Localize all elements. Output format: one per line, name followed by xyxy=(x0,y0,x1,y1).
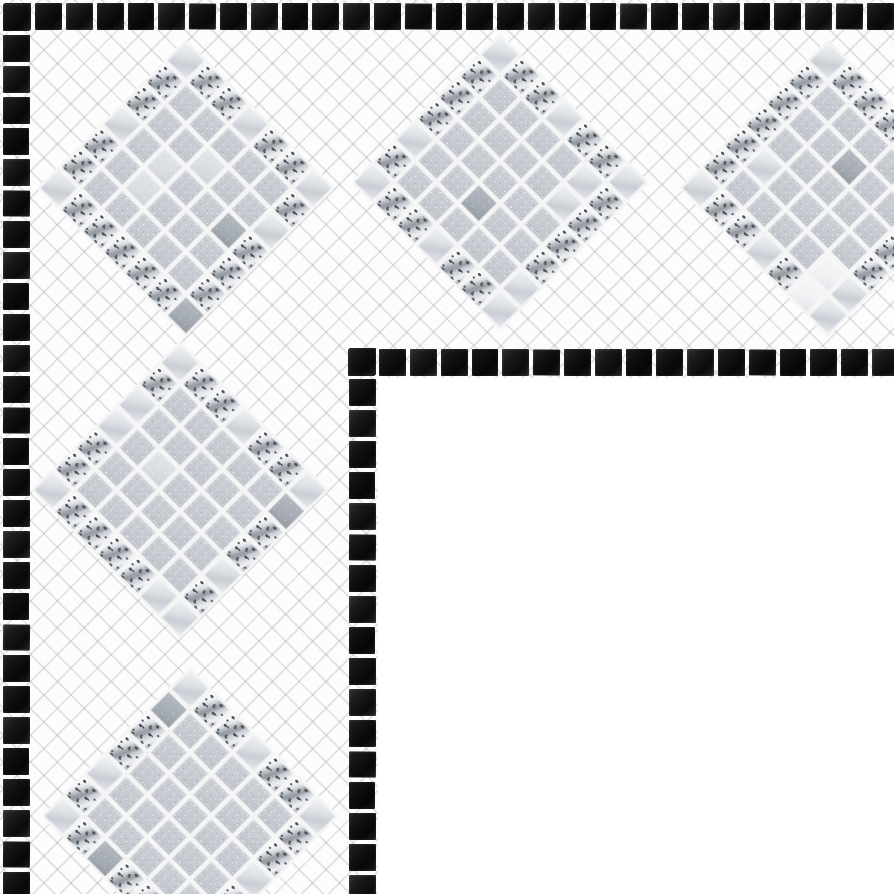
black-tile xyxy=(3,624,30,650)
black-tile-strip-inner-horizontal xyxy=(348,349,894,376)
black-tile xyxy=(349,441,376,468)
black-tile xyxy=(410,349,437,376)
black-tile xyxy=(3,221,30,248)
black-tile xyxy=(349,782,375,809)
black-tile xyxy=(841,349,868,376)
black-tile xyxy=(3,4,30,31)
black-tile xyxy=(3,500,30,527)
black-tile xyxy=(774,3,801,30)
black-tile xyxy=(656,349,683,376)
black-tile xyxy=(312,3,339,30)
black-tile xyxy=(3,686,30,713)
black-tile xyxy=(66,3,93,30)
black-tile xyxy=(687,349,714,376)
black-tile xyxy=(564,349,591,376)
black-tile xyxy=(3,438,29,465)
black-tile xyxy=(497,3,524,30)
black-tile xyxy=(3,841,30,867)
black-tile-strip-inner-vertical xyxy=(349,348,376,894)
black-tile xyxy=(595,349,622,376)
black-tile xyxy=(805,3,832,30)
black-tile xyxy=(810,349,837,376)
black-tile xyxy=(436,3,462,30)
black-tile xyxy=(744,3,770,30)
black-tile xyxy=(349,627,375,654)
black-tile xyxy=(872,349,894,376)
black-tile xyxy=(349,875,376,894)
black-tile-strip-outer-top xyxy=(4,3,894,30)
black-tile xyxy=(559,3,586,30)
black-tile xyxy=(867,3,894,30)
black-tile xyxy=(349,472,375,499)
black-tile xyxy=(3,748,29,775)
black-tile xyxy=(405,3,432,29)
black-tile xyxy=(158,3,185,30)
black-tile xyxy=(3,159,30,186)
black-tile xyxy=(35,3,62,30)
black-tile xyxy=(3,252,30,279)
black-tile xyxy=(3,190,30,216)
black-tile xyxy=(3,593,29,620)
black-tile xyxy=(3,562,30,589)
black-tile xyxy=(349,565,376,592)
black-tile xyxy=(713,3,740,30)
black-tile xyxy=(502,349,529,376)
black-tile xyxy=(780,349,806,376)
black-tile xyxy=(3,872,30,894)
black-tile xyxy=(343,3,370,30)
black-tile xyxy=(749,349,776,375)
black-tile xyxy=(533,349,560,375)
black-tile xyxy=(349,813,376,840)
black-tile xyxy=(651,3,678,30)
black-tile xyxy=(836,3,863,29)
black-tile xyxy=(3,531,30,558)
black-tile xyxy=(3,810,30,837)
black-tile xyxy=(626,349,652,376)
black-tile xyxy=(3,345,30,372)
black-tile xyxy=(379,349,406,376)
black-tile xyxy=(3,717,30,744)
black-tile xyxy=(3,66,30,93)
black-tile xyxy=(590,3,616,30)
black-tile xyxy=(3,655,30,682)
black-tile xyxy=(189,3,216,29)
black-tile xyxy=(441,349,468,376)
black-tile xyxy=(128,3,154,30)
black-tile xyxy=(349,379,376,406)
black-tile xyxy=(349,658,376,685)
black-tile xyxy=(97,3,124,30)
black-tile xyxy=(3,779,30,806)
black-tile xyxy=(528,3,555,30)
black-tile xyxy=(349,534,376,560)
black-tile xyxy=(220,3,247,30)
mosaic-border-corner-photo xyxy=(0,0,894,894)
black-tile xyxy=(3,314,30,341)
black-tile xyxy=(682,3,709,30)
black-tile xyxy=(3,128,29,155)
black-tile xyxy=(349,596,376,623)
black-tile xyxy=(3,283,29,310)
black-tile-strip-outer-left xyxy=(3,4,30,894)
black-tile xyxy=(349,503,376,530)
black-tile xyxy=(282,3,308,30)
black-tile xyxy=(3,97,30,124)
black-tile xyxy=(472,349,498,376)
black-tile xyxy=(620,3,647,29)
black-tile xyxy=(349,751,376,777)
black-tile xyxy=(349,348,376,375)
black-tile xyxy=(374,3,401,30)
black-tile xyxy=(466,3,493,30)
black-tile xyxy=(3,35,30,62)
black-tile xyxy=(3,376,30,403)
black-tile xyxy=(349,410,376,437)
black-tile xyxy=(3,469,30,496)
black-tile xyxy=(718,349,745,376)
black-tile xyxy=(349,689,376,716)
black-tile xyxy=(349,844,376,871)
black-tile xyxy=(349,720,376,747)
black-tile xyxy=(3,407,30,433)
black-tile xyxy=(251,3,278,30)
